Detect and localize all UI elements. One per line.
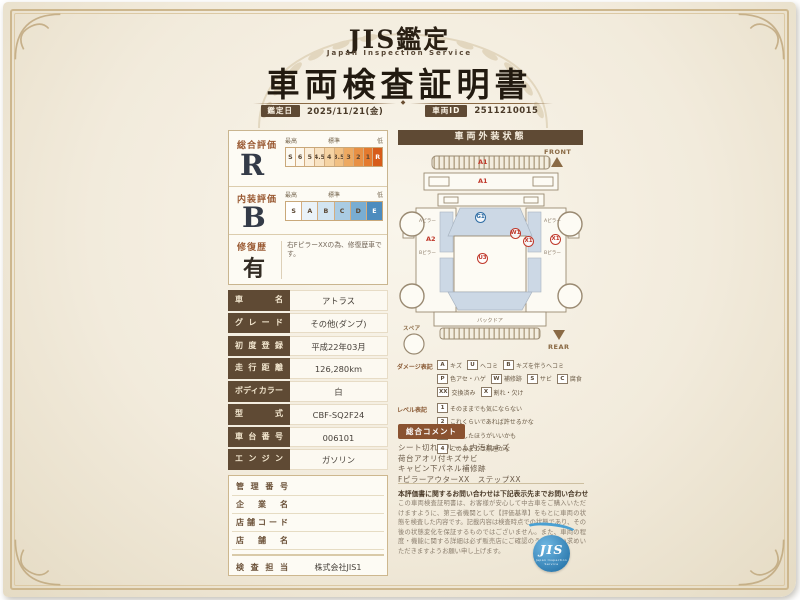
damage-marker: X1 — [523, 236, 534, 247]
table-row: 初度登録平成22年03月 — [228, 336, 388, 357]
table-row: 型式CBF-SQ2F24 — [228, 404, 388, 425]
pillar-a-label-left: Aピラー — [419, 218, 436, 224]
scale-cell: 4.5 — [315, 148, 325, 166]
scale-cell: 3.5 — [335, 148, 345, 166]
section-divider — [229, 186, 387, 187]
corner-flourish — [737, 538, 787, 588]
vehicle-field-value: CBF-SQ2F24 — [290, 404, 388, 425]
scale-mid-label: 標準 — [328, 193, 340, 199]
vehicle-field-value: アトラス — [290, 290, 388, 311]
office-field-value — [292, 478, 384, 495]
rear-arrow-icon — [553, 330, 565, 340]
vehicle-field-value: 006101 — [290, 427, 388, 448]
scale-cell: 3 — [344, 148, 354, 166]
repair-history-note: 右FピラーXXの為、修復歴車です。 — [281, 241, 387, 279]
jis-logo-subtext: Japan Inspection Service — [533, 558, 570, 566]
legend-text: 補修跡 — [504, 374, 522, 383]
vehicle-field-label: グレード — [228, 313, 290, 334]
legend-code: U — [467, 360, 478, 370]
scale-header: 最高 標準 低 — [285, 193, 383, 201]
legend-code: 1 — [437, 403, 448, 413]
legend-text: キズを伴うヘコミ — [516, 361, 564, 370]
ornament-line — [253, 103, 396, 104]
legend-text: キズ — [450, 361, 462, 370]
interior-grade: B — [242, 201, 266, 234]
vehicle-id-value: 2511210015 — [474, 106, 538, 116]
scale-cell: D — [351, 202, 367, 220]
scale-cell: S — [286, 148, 296, 166]
office-field-value — [292, 532, 384, 549]
damage-marker: A1 — [478, 178, 488, 185]
section-divider — [229, 234, 387, 235]
overall-scale-cells: S 6 5 4.5 4 3.5 3 2 1 R — [285, 147, 383, 167]
scale-mid-label: 標準 — [328, 139, 340, 145]
office-field-label: 管理番号 — [232, 478, 292, 495]
scale-cell: 5 — [305, 148, 315, 166]
legend-code: C — [557, 374, 568, 384]
damage-legend-items: Aキズ Uヘコミ Bキズを伴うヘコミ P色アセ・ハゲ W補修跡 Sサビ C腐食 … — [437, 360, 587, 397]
damage-marker: W1 — [510, 228, 521, 239]
footer-contact-line: 本評価書に関するお問い合わせは下記表示先までお問い合わせいたします。 — [398, 488, 588, 498]
legend-text: 割れ・欠け — [494, 388, 524, 397]
legend-text: 色アセ・ハゲ — [450, 374, 486, 383]
vehicle-field-value: 126,280km — [290, 358, 388, 379]
legend-item: X割れ・欠け — [481, 387, 524, 397]
damage-legend-row: ダメージ表記 Aキズ Uヘコミ Bキズを伴うヘコミ P色アセ・ハゲ W補修跡 S… — [397, 360, 587, 397]
jis-logo-text: JIS — [533, 542, 570, 557]
front-direction-label: FRONT — [544, 148, 571, 156]
scale-high-label: 最高 — [285, 139, 297, 145]
damage-marker: G1 — [475, 212, 486, 223]
table-row: 車名アトラス — [228, 290, 388, 311]
legend-item: Sサビ — [527, 374, 552, 384]
comment-line: シート切れ ルーム内汚れキズ — [398, 443, 584, 454]
legend-text: ヘコミ — [480, 361, 498, 370]
inspection-date-value: 2025/11/21(金) — [307, 105, 383, 117]
vehicle-field-value: 平成22年03月 — [290, 336, 388, 357]
table-row: ボディカラー白 — [228, 381, 388, 402]
legend-text: サビ — [540, 374, 552, 383]
legend-item: P色アセ・ハゲ — [437, 374, 486, 384]
repair-history-grade: 有 — [243, 251, 265, 283]
damage-marker: X1 — [550, 234, 561, 245]
scale-cell: 2 — [354, 148, 364, 166]
vehicle-field-label: 走行距離 — [228, 358, 290, 379]
scale-high-label: 最高 — [285, 193, 297, 199]
overall-comments: 総合コメント シート切れ ルーム内汚れキズ 荷台アオリ付キズサビ キャビン下パネ… — [398, 419, 584, 485]
office-field-label: 店舗名 — [232, 532, 292, 549]
jis-logo: JIS Japan Inspection Service — [524, 523, 582, 577]
vehicle-field-label: エンジン — [228, 449, 290, 470]
pillar-a-label-right: Aピラー — [544, 218, 561, 224]
office-field-label: 企業名 — [232, 496, 292, 513]
table-row: 走行距離126,280km — [228, 358, 388, 379]
legend-text: 交換済み — [451, 388, 475, 397]
legend-code: S — [527, 374, 538, 384]
legend-code: A — [437, 360, 448, 370]
office-field-value — [292, 514, 384, 531]
jis-logo-circle: JIS Japan Inspection Service — [533, 535, 570, 572]
damage-marker: A1 — [478, 159, 488, 166]
scale-cell: C — [335, 202, 351, 220]
legend-item: W補修跡 — [491, 374, 522, 384]
scale-cell: A — [302, 202, 318, 220]
legend-item: 1そのままでも気にならない — [437, 403, 522, 413]
inspection-date-chip: 鑑定日 — [261, 105, 301, 117]
vehicle-id-chip: 車両ID — [425, 105, 467, 117]
exterior-section-title: 車両外装状態 — [398, 130, 583, 145]
table-row: グレードその他(ダンプ) — [228, 313, 388, 334]
car-diagram: Aピラー Aピラー Bピラー Bピラー バックドア FRONT REAR スペア… — [398, 148, 583, 360]
legend-item: Aキズ — [437, 360, 462, 370]
scale-cell: R — [373, 148, 382, 166]
legend-code: B — [503, 360, 514, 370]
office-field-value — [292, 496, 384, 513]
scale-header: 最高 標準 低 — [285, 139, 383, 147]
scale-low-label: 低 — [377, 193, 383, 199]
overall-scale: 最高 標準 低 S 6 5 4.5 4 3.5 3 2 1 R — [285, 139, 383, 167]
office-table: 管理番号 企業名 店舗コード 店舗名 検査担当 株式会社JIS1 — [228, 475, 388, 576]
scale-cell: E — [367, 202, 382, 220]
damage-marker: U3 — [477, 253, 488, 264]
legend-item: C腐食 — [557, 374, 582, 384]
legend-text: そのままでも気にならない — [450, 404, 522, 413]
vehicle-field-value: 白 — [290, 381, 388, 402]
scale-cell: 6 — [296, 148, 306, 166]
front-arrow-icon — [551, 157, 563, 167]
corner-flourish — [12, 538, 62, 588]
ratings-box: 総合評価 R 最高 標準 低 S 6 5 4.5 4 3.5 3 2 1 R — [228, 130, 388, 285]
inspector-value: 株式会社JIS1 — [292, 556, 384, 579]
legend-code: XX — [437, 387, 449, 397]
vehicle-field-label: 初度登録 — [228, 336, 290, 357]
backdoor-label: バックドア — [477, 317, 503, 324]
vehicle-field-value: その他(ダンプ) — [290, 313, 388, 334]
vehicle-field-label: 型式 — [228, 404, 290, 425]
inspector-label: 検査担当 — [232, 556, 292, 579]
table-row: エンジンガソリン — [228, 449, 388, 470]
vehicle-field-label: 車名 — [228, 290, 290, 311]
spare-tire-label: スペア — [403, 324, 421, 332]
legend-item: XX交換済み — [437, 387, 476, 397]
interior-scale: 最高 標準 低 S A B C D E — [285, 193, 383, 221]
table-row: 管理番号 — [232, 478, 384, 496]
scale-cell: B — [318, 202, 334, 220]
legend-item: Uヘコミ — [467, 360, 498, 370]
damage-legend-label: ダメージ表記 — [397, 360, 437, 397]
table-row: 企業名 — [232, 496, 384, 514]
table-row: 店舗コード — [232, 514, 384, 532]
comment-line: 荷台アオリ付キズサビ — [398, 454, 584, 465]
pillar-b-label-left: Bピラー — [419, 250, 436, 256]
overall-grade: R — [240, 148, 264, 182]
legend-code: W — [491, 374, 502, 384]
car-diagram-drawing: Aピラー Aピラー Bピラー Bピラー バックドア — [398, 148, 583, 360]
damage-marker: A2 — [426, 236, 436, 243]
ornament-line — [410, 103, 553, 104]
vehicle-field-label: ボディカラー — [228, 381, 290, 402]
vehicle-field-value: ガソリン — [290, 449, 388, 470]
certificate-page: JIS鑑定 Japan Inspection Service 車両検査証明書 鑑… — [3, 2, 796, 597]
pillar-b-label-right: Bピラー — [544, 250, 561, 256]
table-row: 車台番号006101 — [228, 427, 388, 448]
legend-text: 腐食 — [570, 374, 582, 383]
scale-cell: 1 — [364, 148, 374, 166]
legend-item: Bキズを伴うヘコミ — [503, 360, 564, 370]
scale-cell: S — [286, 202, 302, 220]
comments-title-chip: 総合コメント — [398, 424, 465, 439]
vehicle-field-label: 車台番号 — [228, 427, 290, 448]
inspector-row: 検査担当 株式会社JIS1 — [232, 554, 384, 579]
scale-cell: 4 — [325, 148, 335, 166]
rear-direction-label: REAR — [548, 343, 569, 351]
comment-line: キャビン下パネル補修跡 — [398, 464, 584, 475]
brand-subtitle: Japan Inspection Service — [3, 49, 796, 57]
vehicle-table: 車名アトラス グレードその他(ダンプ) 初度登録平成22年03月 走行距離126… — [228, 290, 388, 472]
footer-divider — [398, 483, 584, 484]
scale-low-label: 低 — [377, 139, 383, 145]
interior-scale-cells: S A B C D E — [285, 201, 383, 221]
office-field-label: 店舗コード — [232, 514, 292, 531]
legend-code: X — [481, 387, 492, 397]
meta-row: 鑑定日 2025/11/21(金) 車両ID 2511210015 — [3, 105, 796, 117]
legend-code: P — [437, 374, 448, 384]
table-row: 店舗名 — [232, 532, 384, 550]
